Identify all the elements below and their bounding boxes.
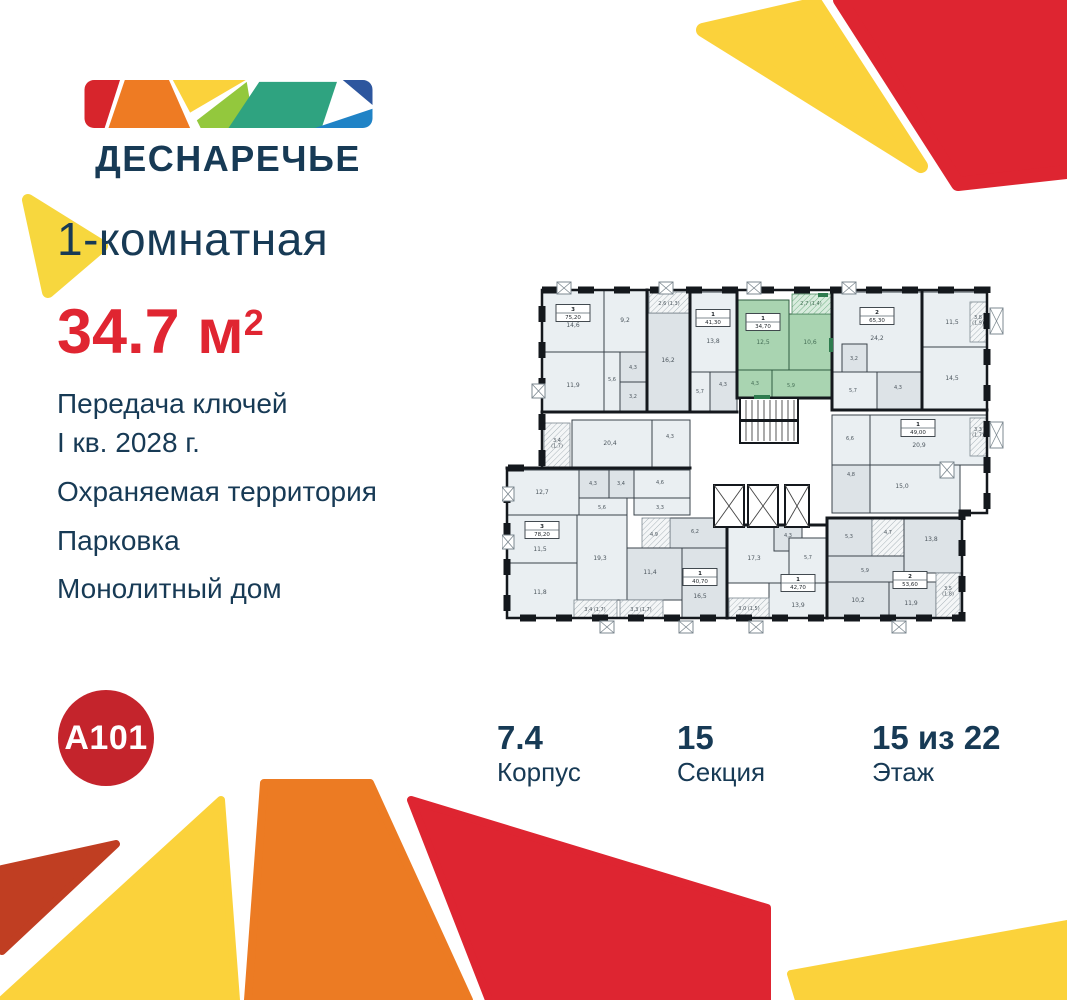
plan-room-area-label: 20,4 — [603, 440, 617, 447]
stat-building-value: 7.4 — [497, 720, 581, 756]
plan-room-area-label: 19,3 — [593, 555, 607, 562]
plan-room-area-label: 4,3 — [784, 533, 792, 539]
plan-room-area-label: 10,2 — [851, 597, 865, 604]
plan-room-area-label: 5,6 — [608, 377, 616, 383]
plan-room-area-label: 3,0 (1,5) — [738, 606, 759, 612]
plan-room-area-label: 4,3 — [589, 481, 597, 487]
plan-room-area-label: 14,6 — [566, 322, 580, 329]
svg-text:1: 1 — [698, 571, 702, 577]
plan-room-area-label: 24,2 — [870, 335, 884, 342]
plan-room-area-label: 5,7 — [804, 555, 812, 561]
apartment-type-title: 1-комнатная — [57, 212, 328, 266]
plan-room-area-label: 3,4 — [617, 481, 625, 487]
plan-room-area-label: 11,9 — [566, 382, 580, 389]
plan-room-area-label: 14,5 — [945, 375, 959, 382]
plan-room — [904, 518, 962, 573]
svg-text:3: 3 — [540, 524, 544, 530]
plan-room-area-label: 3,3 (1,7) — [630, 607, 651, 613]
feature-monolithic-building: Монолитный дом — [57, 569, 282, 608]
area-unit: м — [197, 297, 244, 367]
svg-text:2: 2 — [908, 574, 912, 580]
plan-room-area-label: 17,3 — [747, 555, 761, 562]
svg-text:1: 1 — [916, 422, 920, 428]
deco-bottom-right-yellow-shape — [791, 924, 1067, 1000]
plan-room-area-label: 10,6 — [803, 339, 817, 346]
stat-section: 15 Секция — [677, 720, 765, 788]
feature-keys-line2: I кв. 2028 г. — [57, 423, 288, 462]
stat-section-label: Секция — [677, 756, 765, 788]
svg-text:53,60: 53,60 — [902, 582, 918, 588]
svg-text:65,30: 65,30 — [869, 318, 885, 324]
plan-room — [772, 370, 832, 398]
svg-text:3: 3 — [571, 307, 575, 313]
svg-text:1: 1 — [761, 316, 765, 322]
floor-plan: 14,69,211,95,64,33,216,22,6 (1,3)13,85,7… — [502, 280, 1017, 634]
plan-room-area-label: 4,3 — [894, 385, 902, 391]
plan-room-area-label: 11,5 — [945, 319, 959, 326]
plan-room — [737, 300, 789, 370]
feature-keys-line1: Передача ключей — [57, 384, 288, 423]
plan-room-area-label: 4,3 — [666, 434, 674, 440]
plan-room-area-label: 5,3 — [845, 534, 853, 540]
svg-text:40,70: 40,70 — [692, 579, 708, 585]
apartment-area: 34.7 м2 — [57, 296, 264, 368]
plan-room-area-label: 12,5 — [756, 339, 770, 346]
plan-room-area-label: 13,9 — [791, 602, 805, 609]
logo-shape-darkblue — [343, 80, 373, 105]
plan-room-area-label: 3,4 (1,7) — [584, 607, 605, 613]
svg-text:78,20: 78,20 — [534, 532, 550, 538]
plan-room-area-label: 20,9 — [912, 442, 926, 449]
plan-room-area-label: 4,7 — [884, 530, 892, 536]
plan-room-area-label: 2,6 (1,3) — [658, 301, 679, 307]
plan-room-area-label: 13,8 — [706, 338, 720, 345]
feature-parking: Парковка — [57, 521, 180, 560]
plan-room — [710, 372, 737, 412]
plan-room-area-label: 11,4 — [643, 569, 657, 576]
plan-room-area-label: 5,7 — [696, 389, 704, 395]
developer-logo-text: A101 — [64, 719, 147, 758]
plan-room-area-label: 5,9 — [787, 383, 795, 389]
plan-room-area-label: 5,9 — [861, 568, 869, 574]
svg-text:1: 1 — [796, 577, 800, 583]
plan-room-area-label: 3,3 — [656, 505, 664, 511]
plan-room-area-label: 4,3 — [751, 381, 759, 387]
stat-floor: 15 из 22 Этаж — [872, 720, 1000, 788]
plan-room-area-label: 3,2 — [850, 356, 858, 362]
plan-room-area-label: 4,8 — [847, 472, 855, 478]
stat-floor-label: Этаж — [872, 756, 1000, 788]
plan-room — [690, 292, 737, 372]
plan-room-area-label: 5,7 — [849, 388, 857, 394]
plan-room-area-label: 16,2 — [661, 357, 675, 364]
plan-room-area-label: 2,7 (1,4) — [800, 301, 821, 307]
area-superscript: 2 — [244, 302, 264, 343]
brand-logo-mosaic — [80, 80, 377, 128]
brand-wordmark: ДЕСНАРЕЧЬЕ — [78, 138, 378, 180]
plan-room-area-label: 4,3 — [629, 365, 637, 371]
developer-logo-circle: A101 — [58, 690, 154, 786]
deco-bottom-red-shape — [411, 800, 767, 1000]
plan-room-area-label: 4,3 — [719, 382, 727, 388]
svg-text:41,30: 41,30 — [705, 320, 721, 326]
svg-text:75,20: 75,20 — [565, 315, 581, 321]
plan-room-area-label: 11,9 — [904, 600, 918, 607]
plan-room-area-label: 16,5 — [693, 593, 707, 600]
plan-room-area-label: 13,8 — [924, 536, 938, 543]
plan-room-area-label: 3,2 — [629, 394, 637, 400]
svg-text:49,00: 49,00 — [910, 430, 926, 436]
svg-text:34,70: 34,70 — [755, 324, 771, 330]
plan-room-area-label: 4,9 — [650, 532, 658, 538]
svg-text:42,70: 42,70 — [790, 585, 806, 591]
svg-text:2: 2 — [875, 310, 879, 316]
plan-room-area-label: 11,8 — [533, 589, 547, 596]
stat-section-value: 15 — [677, 720, 765, 756]
feature-keys-handover: Передача ключей I кв. 2028 г. — [57, 384, 288, 462]
plan-room-area-label: 15,0 — [895, 483, 909, 490]
plan-room — [652, 420, 690, 468]
svg-text:1: 1 — [711, 312, 715, 318]
plan-room-area-label: 6,2 — [691, 529, 699, 535]
plan-room-area-label: 4,6 — [656, 480, 664, 486]
plan-room — [877, 372, 922, 410]
plan-room-area-label: 11,5 — [533, 546, 547, 553]
listing-card: ДЕСНАРЕЧЬЕ 1-комнатная 34.7 м2 Передача … — [0, 0, 1067, 1000]
plan-room-area-label: 12,7 — [535, 489, 549, 496]
stat-floor-value: 15 из 22 — [872, 720, 1000, 756]
plan-room-area-label: 6,6 — [846, 436, 854, 442]
plan-room — [872, 518, 904, 556]
stat-building: 7.4 Корпус — [497, 720, 581, 788]
plan-room-area-label: 9,2 — [620, 317, 630, 324]
stat-building-label: Корпус — [497, 756, 581, 788]
plan-room-area-label: 5,6 — [598, 505, 606, 511]
area-value: 34.7 — [57, 297, 180, 367]
feature-guarded-territory: Охраняемая территория — [57, 472, 377, 511]
